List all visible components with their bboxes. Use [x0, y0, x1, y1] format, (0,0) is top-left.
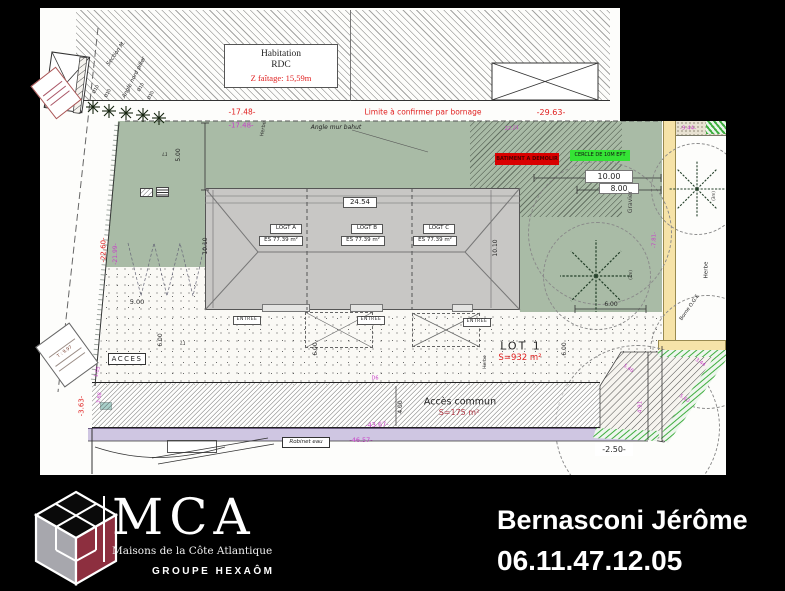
dim-10-00-box: 10.00 — [585, 170, 633, 183]
tree-3m-label-2: (3m) — [629, 270, 633, 280]
lot-1-title: LOT 1 — [500, 341, 542, 352]
entree-tag-3: ENTREE — [463, 318, 491, 327]
habitation-label-box: Habitation RDC Z faîtage: 15,59m — [224, 44, 338, 88]
cercle-ept-tag: CERCLE DE 10M EPT — [570, 150, 630, 161]
acces-commun-surface: S=175 m² — [439, 409, 480, 417]
dim-4-00: 4.00 — [398, 400, 404, 413]
brand-tagline: Maisons de la Côte Atlantique — [112, 545, 272, 557]
sheet-corner-mask — [620, 8, 726, 121]
logt-a-name: LOGT A — [270, 224, 302, 234]
d6-label: D6 — [371, 377, 378, 382]
logt-b-name: LOGT B — [351, 224, 383, 234]
dim-5-00-horizontal: 5.00 — [130, 299, 144, 306]
limite-bornage-label: Limite à confirmer par bornage — [365, 108, 482, 116]
dim-2-50-box: -2.50- — [595, 443, 633, 456]
dim-3-63: -3.63- — [79, 396, 86, 417]
brand-name: MCA — [112, 488, 256, 546]
dim-10-10-right: 10.10 — [493, 239, 499, 256]
contact-phone: 06.11.47.12.05 — [497, 545, 682, 577]
entree-tag-1: ENTREE — [233, 316, 261, 325]
l1-label-bottom: L1 — [180, 343, 185, 348]
herbe-label-right: Herbe — [704, 262, 710, 279]
brand-group: GROUPE HEXAÔM — [152, 566, 275, 577]
dim-24-54-box: 24.54 — [343, 197, 377, 208]
dim-6-00-left: 6.00 — [158, 333, 164, 346]
robinet-eau-tag: Robinet eau — [282, 437, 330, 448]
l1-label-top: L1 — [162, 154, 167, 159]
logt-c-name: LOGT C — [423, 224, 455, 234]
habitation-faitage: Z faîtage: 15,59m — [251, 74, 312, 83]
dim-6-00-terrace: 6.00 — [313, 342, 319, 355]
logo-separator — [103, 496, 105, 562]
contact-name: Bernasconi Jérôme — [497, 505, 748, 536]
logt-a-area: ES 77.39 m² — [259, 236, 303, 246]
dim-9-44: -9.44- — [680, 126, 696, 132]
tree-3m-label-1: (3m) — [712, 191, 716, 201]
dim-46-57: -46.57- — [349, 437, 372, 444]
triangle-zone — [600, 352, 726, 442]
herbe-label-middle: Herbe — [484, 355, 489, 369]
dim-22-60: -22.60- — [101, 237, 108, 262]
dim-10-10-left: 10.10 — [203, 237, 209, 254]
dim-6-00-palm: 6.00 — [604, 302, 617, 308]
habitation-line2: RDC — [271, 61, 291, 71]
acces-commun-label: Accès commun — [424, 397, 496, 407]
habitation-line1: Habitation — [261, 50, 301, 60]
entree-tag-2: ENTREE — [357, 316, 385, 325]
dim-17-48-red: -17.48- — [229, 108, 256, 116]
angle-mur-bahut-label: Angle mur bahut — [311, 125, 361, 131]
parcel-scribble — [50, 90, 70, 106]
acces-tag: ACCES — [108, 353, 146, 365]
dim-6-00-lot: 6.00 — [562, 342, 568, 355]
batiment-demolir-tag: BATIMENT A DEMOLIR — [495, 153, 559, 165]
dim-17-48-magenta: -17.48- — [228, 123, 253, 130]
logt-b-area: ES 77.39 m² — [341, 236, 385, 246]
dim-7-81: -7.81- — [652, 232, 658, 248]
mca-cube-logo — [28, 488, 124, 588]
gravier-label: Gravier — [628, 191, 634, 213]
logt-c-area: ES 77.39 m² — [413, 236, 457, 246]
dim-4-91: 4.91 — [638, 401, 644, 413]
lot-1-surface: S=932 m² — [498, 354, 541, 363]
site-plan-page: Habitation RDC Z faîtage: 15,59m Limite … — [0, 0, 785, 591]
crossed-box-large — [492, 63, 598, 100]
dim-21-99: -21.99- — [113, 243, 119, 265]
dim-5-00-vertical: 5.00 — [176, 148, 182, 161]
dim-43-67: -43.67- — [365, 421, 389, 429]
dim-29-63: -29.63- — [537, 109, 566, 117]
